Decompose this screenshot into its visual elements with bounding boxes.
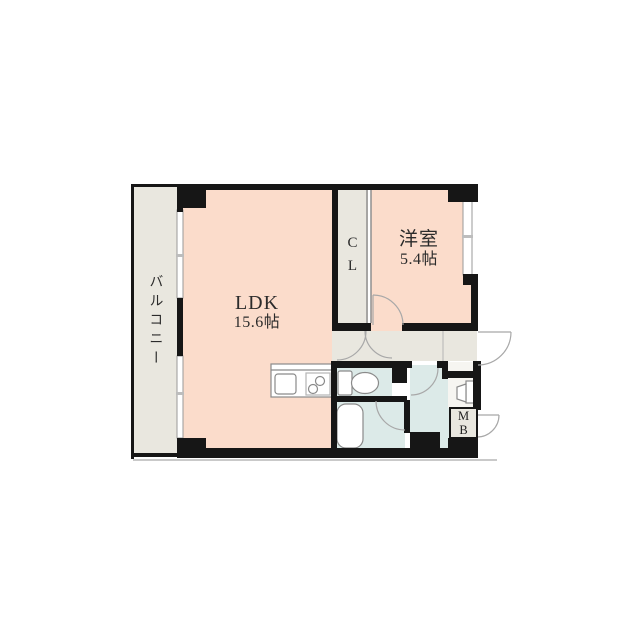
floor-plan: バルコニー LDK 15.6帖 C L 洋室 5.4帖 M B (0, 0, 640, 640)
toilet-bowl (352, 373, 379, 394)
meter-box-m: M (450, 409, 477, 423)
balcony-wall-stub (177, 206, 183, 212)
meter-box-label: M B (450, 409, 477, 437)
closet-label: C L (338, 232, 367, 278)
hallway-floor (332, 331, 477, 361)
kitchen-sink (275, 374, 296, 394)
balcony-wall-bottom (131, 453, 178, 457)
balcony-wall-top (131, 184, 180, 187)
balcony-wall-left (131, 184, 134, 459)
meter-box-b: B (450, 423, 477, 437)
entry-step-wall (442, 371, 477, 378)
pillar-top-left (177, 184, 206, 208)
outer-wall-right-mid (473, 361, 481, 410)
balcony-window-1-mullion (176, 254, 184, 257)
balcony-wall-mid (177, 298, 183, 356)
bath-wash-wall (404, 400, 410, 433)
entry-step-floor (448, 362, 477, 371)
bedroom-south-wall (402, 323, 478, 331)
balcony-label: バルコニー (147, 259, 162, 384)
bedroom-area: 5.4帖 (369, 251, 469, 269)
entrance-door-arc (478, 332, 511, 365)
mb-door-arc (477, 415, 499, 437)
balcony-window-2-mullion (176, 392, 184, 395)
floor-plan-drawing (0, 0, 640, 640)
ldk-area: 15.6帖 (197, 314, 317, 332)
closet-label-c: C (338, 232, 367, 255)
wash-corner-block (410, 432, 440, 452)
ldk-name: LDK (197, 292, 317, 314)
toilet-bath-wall (331, 396, 407, 402)
pillar-bottom-left (177, 438, 206, 456)
mb-bottom-block (448, 438, 478, 450)
shadow-line (133, 459, 497, 461)
outer-wall-top (177, 184, 478, 190)
washbasin-bowl (457, 384, 466, 402)
closet-label-l: L (338, 255, 367, 278)
bedroom-label: 洋室 5.4帖 (369, 230, 469, 268)
bathtub (337, 404, 363, 448)
bedroom-east-wall (471, 285, 478, 331)
bedroom-name: 洋室 (369, 230, 469, 251)
ldk-label: LDK 15.6帖 (197, 292, 317, 332)
toilet-tank (338, 371, 352, 395)
bedroom-east-step (463, 274, 478, 285)
closet-south-wall (338, 323, 371, 331)
wet-area-west-wall (331, 361, 337, 452)
balcony-window-2 (177, 356, 183, 438)
toilet-east-wall (392, 363, 407, 383)
pillar-top-right (448, 184, 478, 202)
